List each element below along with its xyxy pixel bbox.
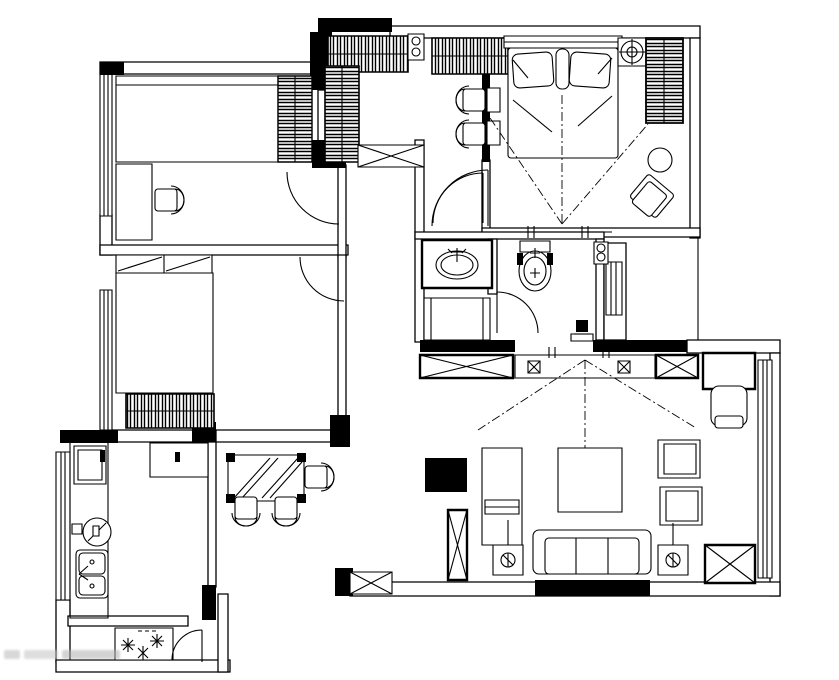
room-master-bedroom bbox=[486, 36, 683, 238]
toilet bbox=[517, 241, 553, 291]
plant-stand bbox=[705, 545, 755, 583]
desk bbox=[116, 164, 152, 240]
island-table bbox=[150, 443, 208, 477]
bedside-table-2 bbox=[487, 121, 500, 145]
bedroom2-window bbox=[100, 290, 112, 430]
room-bathroom bbox=[422, 170, 608, 341]
air-conditioner bbox=[618, 38, 646, 66]
armchair-lower bbox=[660, 487, 702, 525]
desk-chair bbox=[711, 386, 747, 428]
sofa bbox=[533, 530, 651, 574]
room-second-bedroom bbox=[116, 255, 344, 428]
dining-chair-2 bbox=[272, 497, 300, 526]
dining-chair-1 bbox=[232, 497, 260, 526]
storage-bench bbox=[358, 145, 424, 167]
washbasin-counter bbox=[422, 240, 492, 288]
living-window bbox=[758, 360, 772, 578]
balcony-door-arc bbox=[172, 630, 202, 660]
study-door-arc bbox=[287, 172, 339, 224]
toilet-door-arc bbox=[497, 292, 538, 333]
gas-stove bbox=[72, 518, 111, 546]
pipe-column-2 bbox=[594, 242, 608, 264]
armchair-upper bbox=[658, 440, 700, 478]
duct-window bbox=[606, 262, 622, 315]
wardrobe-side bbox=[325, 66, 359, 162]
kitchen-window bbox=[56, 452, 70, 600]
double-bed-2 bbox=[116, 273, 213, 393]
tv-cabinet bbox=[482, 448, 522, 545]
lamp-side-table-left bbox=[493, 545, 523, 575]
double-sink bbox=[76, 550, 108, 598]
study-window bbox=[100, 74, 112, 216]
headboard bbox=[504, 36, 622, 48]
shower-stall bbox=[424, 298, 490, 340]
room-kitchen bbox=[70, 442, 208, 618]
study-wardrobe bbox=[278, 76, 312, 162]
refrigerator bbox=[74, 446, 106, 484]
storage-cabinet-right bbox=[656, 355, 698, 378]
tall-cabinet bbox=[448, 510, 467, 580]
bedside-table-1 bbox=[487, 88, 500, 112]
room-living bbox=[350, 347, 755, 594]
wardrobe-top-right bbox=[432, 38, 508, 74]
office-chair bbox=[155, 186, 184, 214]
pipe-column bbox=[408, 34, 424, 60]
floor-plan-canvas: apartment-floor-plan bbox=[0, 0, 839, 680]
master-wardrobe bbox=[646, 38, 683, 123]
shoe-cabinet bbox=[350, 572, 392, 594]
single-bed bbox=[116, 76, 278, 162]
coffee-table bbox=[558, 448, 622, 512]
dining-chair-3 bbox=[305, 463, 334, 491]
desk-right bbox=[703, 353, 755, 389]
sliding-closet bbox=[116, 255, 212, 273]
lounge-chair bbox=[627, 174, 674, 221]
watermark bbox=[4, 647, 132, 662]
dresser bbox=[126, 394, 214, 428]
storage-cabinet-left bbox=[420, 355, 513, 378]
dining-table bbox=[226, 453, 306, 503]
room-study-bedroom bbox=[116, 76, 339, 240]
floor-plan-drawing: apartment-floor-plan bbox=[0, 0, 839, 680]
round-side-table bbox=[648, 148, 672, 172]
closet-door-arc bbox=[433, 173, 483, 223]
lamp-side-table-right bbox=[658, 545, 688, 575]
closet-chair-1 bbox=[456, 86, 485, 114]
master-bed bbox=[508, 48, 618, 158]
closet-chair-2 bbox=[456, 120, 485, 148]
small-appliance bbox=[571, 320, 593, 341]
room-dining bbox=[226, 453, 334, 526]
